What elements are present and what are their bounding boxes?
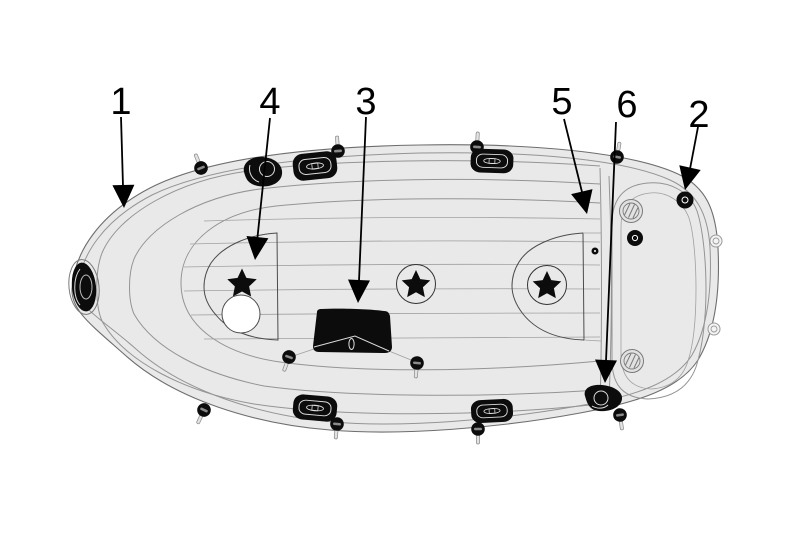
- callout-label-2: 2: [688, 96, 709, 134]
- stern-star-badge: [528, 266, 567, 305]
- air-valve-bottom: [621, 350, 644, 373]
- carry-handle-top-left: [292, 150, 339, 181]
- small-rivet-center: [594, 250, 596, 252]
- stern-fitting: [677, 192, 694, 209]
- carry-handle-bottom-left: [292, 394, 338, 423]
- transom-ring-bottom: [708, 323, 720, 335]
- air-valve-top: [620, 200, 643, 223]
- callout-arrow-1: [112, 117, 134, 208]
- callout-label-4: 4: [259, 83, 280, 121]
- carry-handle-bottom-right: [471, 398, 514, 423]
- callout-label-6: 6: [616, 86, 637, 124]
- bow-seat-cup-holder: [222, 295, 260, 333]
- boat-parts-diagram: 1 4 3 5 6 2: [0, 0, 801, 556]
- center-star-badge: [397, 265, 436, 304]
- callout-label-1: 1: [110, 83, 131, 121]
- callout-label-3: 3: [355, 83, 376, 121]
- drain-plug: [627, 230, 643, 246]
- callout-label-5: 5: [551, 83, 572, 121]
- transom-ring-top: [710, 235, 722, 247]
